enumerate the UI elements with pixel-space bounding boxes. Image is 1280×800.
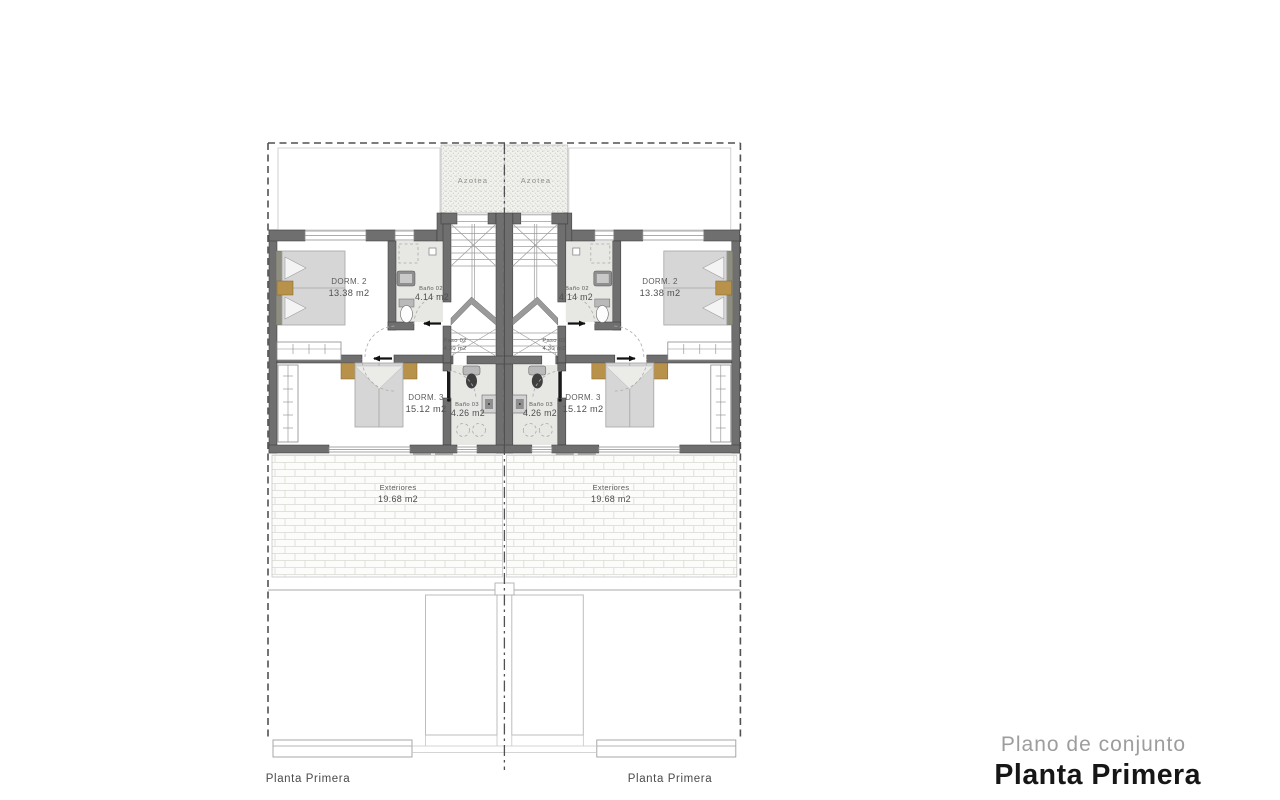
dorm2-area-left: 13.38 m2 [329,288,370,298]
paso02-area-left: 4.30 m2 [443,346,466,352]
floor-plan-canvas: Azotea Azotea DORM. 2 13.38 m2 DORM. 2 1… [0,0,1280,800]
plan-subtitle: Plano de conjunto [1001,733,1186,756]
plan-title: Planta Primera [994,759,1201,791]
paso02-name-right: Paso 02 [542,338,565,344]
exteriores-name-left: Exteriores [380,483,417,492]
bano02-area-right: 4.14 m2 [559,292,593,302]
unit-left [269,145,504,757]
unit-right [504,145,739,757]
azotea-label-right: Azotea [521,176,552,185]
exteriores-area-right: 19.68 m2 [591,494,631,504]
dorm3-area-left: 15.12 m2 [406,404,447,414]
dorm2-area-right: 13.38 m2 [640,288,681,298]
floor-label-right: Planta Primera [628,773,712,785]
dorm3-area-right: 15.12 m2 [563,404,604,414]
exteriores-name-right: Exteriores [593,483,630,492]
dorm2-name-right: DORM. 2 [642,277,678,286]
title-block: Plano de conjunto Planta Primera [994,733,1201,791]
paso02-name-left: Paso 02 [443,338,466,344]
dorm2-name-left: DORM. 2 [331,277,367,286]
azotea-label-left: Azotea [458,176,489,185]
paso02-area-right: 4.30 m2 [542,346,565,352]
dorm3-name-left: DORM. 3 [408,393,444,402]
exteriores-area-left: 19.68 m2 [378,494,418,504]
bano02-area-left: 4.14 m2 [415,292,449,302]
bano03-area-right: 4.26 m2 [523,408,557,418]
dorm3-name-right: DORM. 3 [565,393,601,402]
floor-label-left: Planta Primera [266,773,350,785]
bano03-area-left: 4.26 m2 [451,408,485,418]
